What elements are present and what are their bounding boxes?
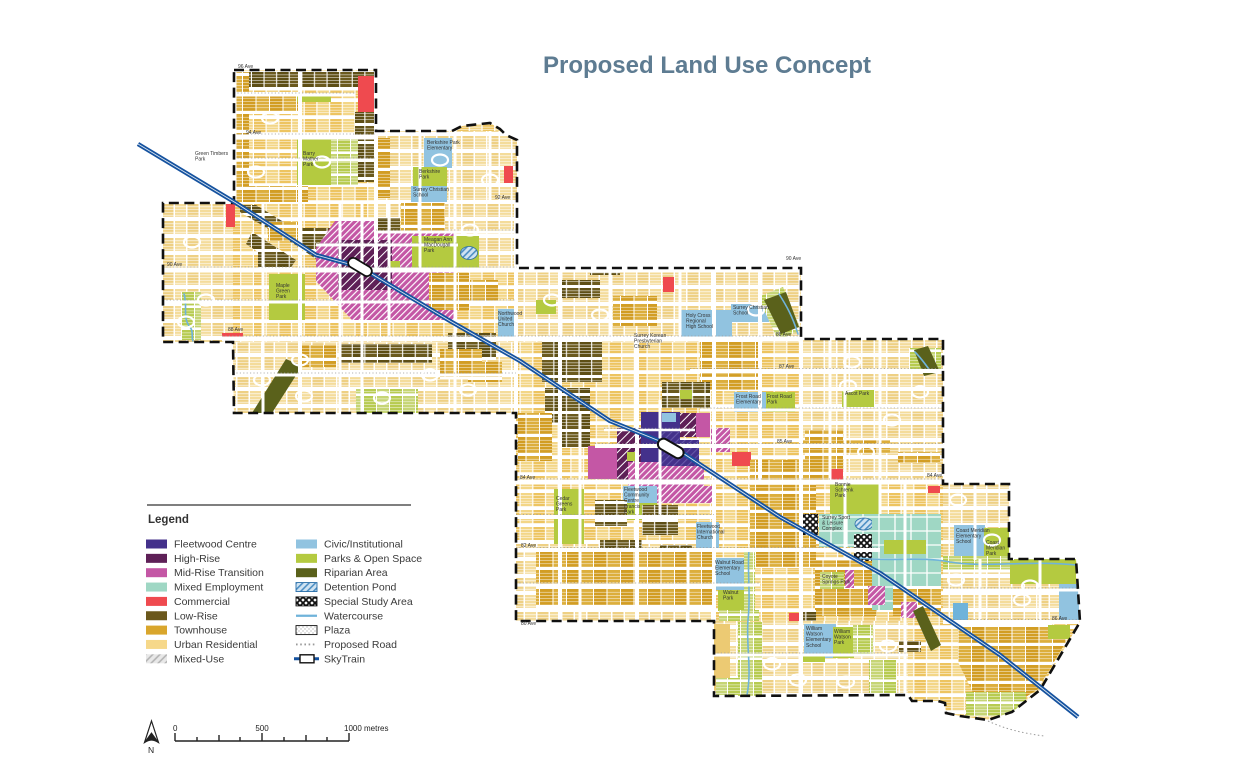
svg-text:84 Ave: 84 Ave bbox=[520, 475, 535, 481]
svg-text:Commercial: Commercial bbox=[174, 596, 230, 608]
svg-text:88 Ave: 88 Ave bbox=[776, 332, 791, 338]
svg-text:Mixed Employment: Mixed Employment bbox=[174, 582, 263, 594]
svg-text:N: N bbox=[148, 745, 154, 755]
svg-text:80 Ave: 80 Ave bbox=[521, 621, 536, 627]
svg-text:90 Ave: 90 Ave bbox=[167, 262, 182, 268]
svg-text:88 Ave: 88 Ave bbox=[228, 327, 243, 333]
svg-text:High-Rise: High-Rise bbox=[174, 553, 220, 565]
svg-text:Green TimbersPark: Green TimbersPark bbox=[195, 151, 229, 163]
svg-text:Low-Rise: Low-Rise bbox=[174, 610, 218, 622]
svg-text:Proposed Land Use Concept: Proposed Land Use Concept bbox=[543, 52, 871, 79]
svg-text:Special Study Area: Special Study Area bbox=[324, 596, 413, 608]
svg-text:87 Ave: 87 Ave bbox=[779, 364, 794, 370]
svg-text:Ascot Park: Ascot Park bbox=[845, 391, 870, 397]
svg-text:82 Ave: 82 Ave bbox=[521, 543, 536, 549]
svg-text:SkyTrain: SkyTrain bbox=[324, 653, 365, 665]
svg-text:84 Ave: 84 Ave bbox=[927, 473, 942, 479]
svg-text:Fleetwood Centre: Fleetwood Centre bbox=[174, 539, 257, 551]
svg-text:Urban Residential: Urban Residential bbox=[174, 639, 257, 651]
svg-text:Legend: Legend bbox=[148, 514, 189, 526]
svg-text:94 Ave: 94 Ave bbox=[246, 130, 261, 136]
svg-text:Townhouse: Townhouse bbox=[174, 625, 227, 637]
svg-text:92 Ave: 92 Ave bbox=[495, 195, 510, 201]
svg-text:Civic/Institutional: Civic/Institutional bbox=[324, 539, 403, 551]
svg-text:Mid-Rise Transition: Mid-Rise Transition bbox=[174, 567, 264, 579]
svg-text:96 Ave: 96 Ave bbox=[238, 64, 253, 70]
svg-text:1000 metres: 1000 metres bbox=[344, 724, 388, 733]
svg-text:0: 0 bbox=[173, 724, 178, 733]
svg-text:Parks & Open Space: Parks & Open Space bbox=[324, 553, 422, 565]
svg-text:85 Ave: 85 Ave bbox=[777, 439, 792, 445]
svg-text:Riparian Area: Riparian Area bbox=[324, 567, 388, 579]
svg-text:Plaza: Plaza bbox=[324, 625, 350, 637]
svg-text:Proposed Road: Proposed Road bbox=[324, 639, 397, 651]
svg-text:Detention Pond: Detention Pond bbox=[324, 582, 397, 594]
svg-text:90 Ave: 90 Ave bbox=[786, 256, 801, 262]
svg-text:86 Ave: 86 Ave bbox=[1052, 616, 1067, 622]
svg-text:Frost RoadElementary: Frost RoadElementary bbox=[736, 394, 762, 406]
svg-text:500: 500 bbox=[255, 724, 269, 733]
svg-text:Mixed-Use: Mixed-Use bbox=[174, 653, 224, 665]
svg-text:Watercourse: Watercourse bbox=[324, 610, 383, 622]
